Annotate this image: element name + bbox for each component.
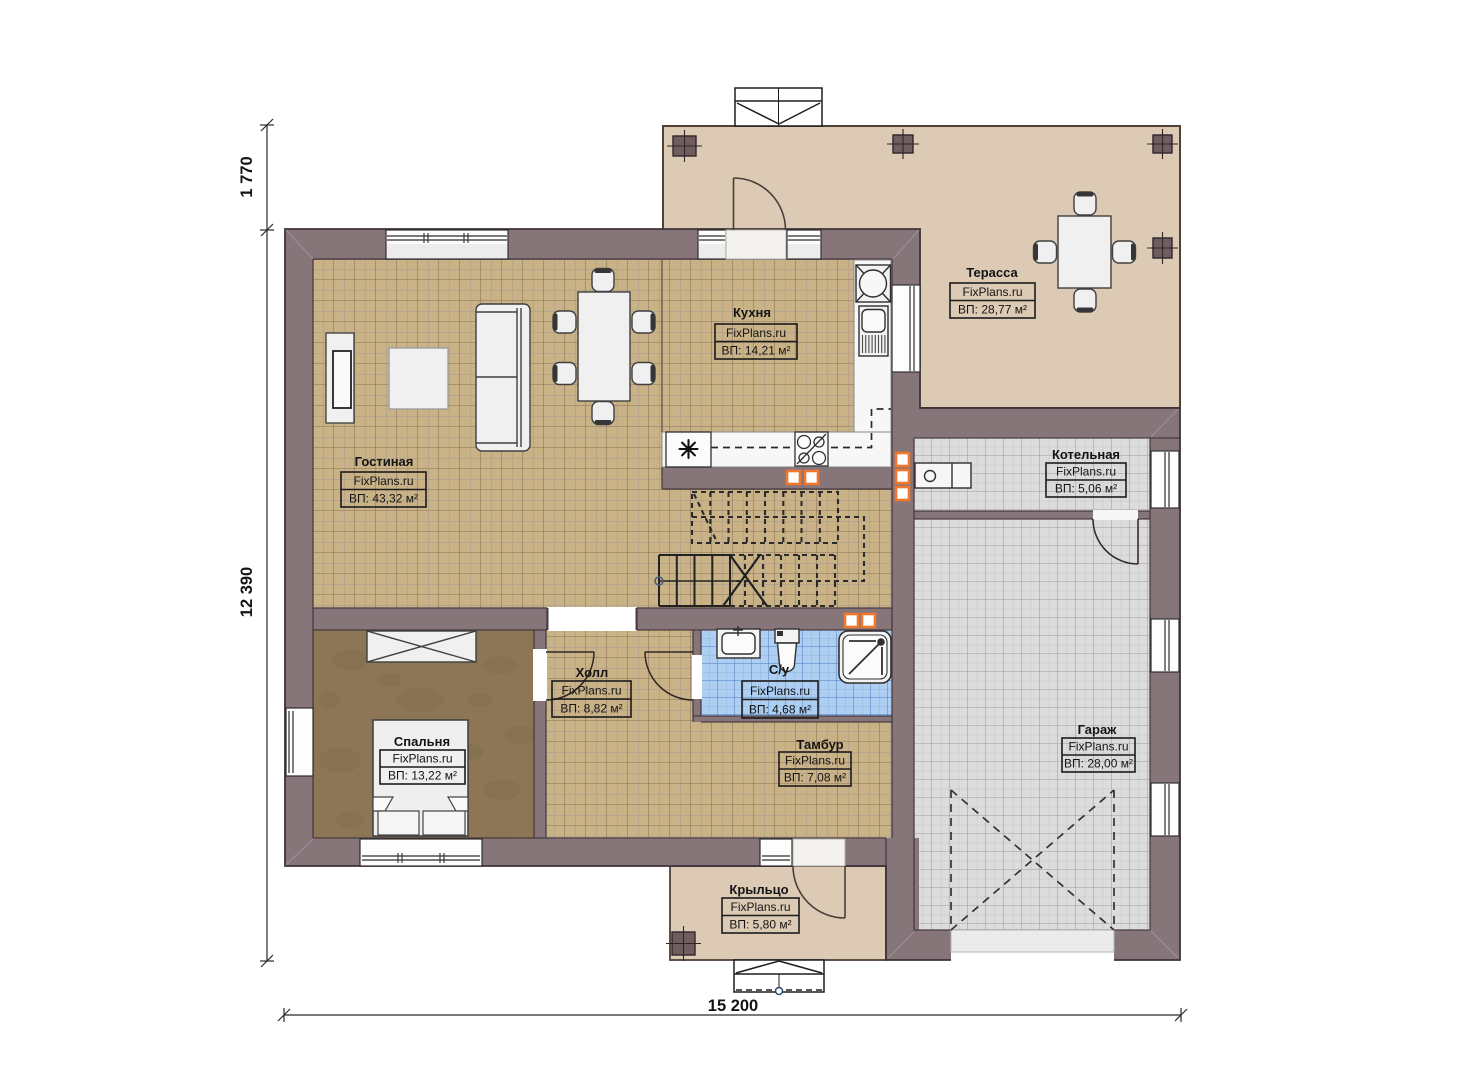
svg-text:Гостиная: Гостиная [355, 454, 414, 469]
svg-text:Холл: Холл [576, 665, 609, 680]
svg-text:ВП: 43,32 м²: ВП: 43,32 м² [349, 492, 418, 506]
svg-text:ВП: 14,21 м²: ВП: 14,21 м² [722, 344, 791, 358]
svg-text:ВП: 4,68 м²: ВП: 4,68 м² [749, 703, 811, 717]
svg-text:FixPlans.ru: FixPlans.ru [561, 684, 621, 698]
svg-text:ВП: 28,00 м²: ВП: 28,00 м² [1064, 757, 1133, 771]
svg-text:FixPlans.ru: FixPlans.ru [1056, 465, 1116, 479]
svg-text:FixPlans.ru: FixPlans.ru [726, 326, 786, 340]
svg-text:FixPlans.ru: FixPlans.ru [730, 900, 790, 914]
svg-text:ВП: 5,06 м²: ВП: 5,06 м² [1055, 482, 1117, 496]
svg-text:FixPlans.ru: FixPlans.ru [750, 684, 810, 698]
svg-text:FixPlans.ru: FixPlans.ru [392, 752, 452, 766]
svg-text:ВП: 5,80 м²: ВП: 5,80 м² [729, 918, 791, 932]
svg-text:ВП: 8,82 м²: ВП: 8,82 м² [560, 702, 622, 716]
svg-text:1 770: 1 770 [238, 156, 256, 197]
svg-text:FixPlans.ru: FixPlans.ru [962, 285, 1022, 299]
svg-text:FixPlans.ru: FixPlans.ru [785, 754, 845, 768]
svg-text:Кухня: Кухня [733, 305, 771, 320]
svg-text:С/у: С/у [769, 662, 790, 677]
svg-text:FixPlans.ru: FixPlans.ru [1068, 740, 1128, 754]
svg-text:ВП: 13,22 м²: ВП: 13,22 м² [388, 769, 457, 783]
svg-text:Тамбур: Тамбур [796, 737, 843, 752]
svg-text:Крыльцо: Крыльцо [729, 882, 788, 897]
svg-text:Терасса: Терасса [966, 265, 1018, 280]
svg-text:Котельная: Котельная [1052, 447, 1120, 462]
svg-text:Спальня: Спальня [394, 734, 450, 749]
svg-text:Гараж: Гараж [1078, 722, 1118, 737]
svg-text:FixPlans.ru: FixPlans.ru [353, 474, 413, 488]
svg-text:ВП: 28,77 м²: ВП: 28,77 м² [958, 303, 1027, 317]
svg-text:15 200: 15 200 [708, 997, 758, 1015]
svg-text:ВП: 7,08 м²: ВП: 7,08 м² [784, 771, 846, 785]
svg-text:12 390: 12 390 [238, 567, 256, 617]
